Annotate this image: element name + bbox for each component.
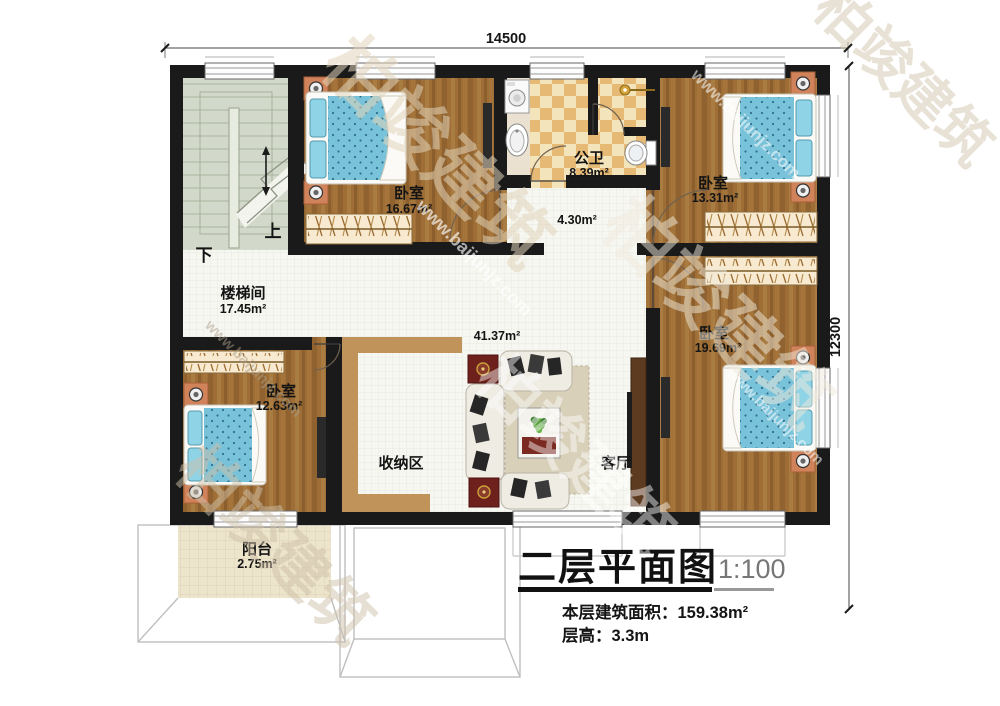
storage-border-left <box>342 337 358 512</box>
plan-title: 二层平面图 <box>518 547 718 589</box>
nightstand-icon <box>184 383 208 406</box>
room-label-bedroom-top-right: 卧室 <box>698 174 728 192</box>
dimension-right-value: 12300 <box>828 317 844 357</box>
bed-icon <box>184 405 266 485</box>
stair-handrail <box>229 108 239 248</box>
tv-icon <box>661 107 670 167</box>
window-top-bedroom2 <box>705 63 785 79</box>
room-area-hallway: 4.30m² <box>557 213 597 227</box>
title-block: 二层平面图 1:100 本层建筑面积：159.38m² 层高：3.3m <box>518 547 786 645</box>
window-top-stairwell <box>205 63 274 79</box>
room-area-bedroom-right: 19.69m² <box>695 341 742 355</box>
nightstand-icon <box>791 72 815 95</box>
room-label-bathroom: 公卫 <box>574 150 604 167</box>
room-label-bedroom-top-left: 卧室 <box>394 184 424 202</box>
room-label-storage: 收纳区 <box>378 454 423 472</box>
room-area-balcony: 2.75m² <box>237 557 277 571</box>
bed-icon <box>306 92 406 184</box>
wardrobe-icon <box>184 351 284 373</box>
nightstand-icon <box>791 450 815 472</box>
room-area-living: 41.37m² <box>474 329 521 343</box>
window-bottom-bedroom3 <box>700 511 785 527</box>
dimension-right: 12300 <box>828 62 853 613</box>
room-area-bedroom-bottom-left: 12.63m² <box>256 399 303 413</box>
coffee-table-icon <box>518 408 560 458</box>
watermark-brand: 柏竣建筑 <box>802 0 1000 178</box>
room-area-stairwell: 17.45m² <box>220 302 267 316</box>
title-underline-gray <box>714 588 774 591</box>
bed-icon <box>723 94 816 182</box>
stairs-down-label: 下 <box>196 246 213 265</box>
dimension-top-value: 14500 <box>486 31 526 47</box>
bed-icon <box>723 365 816 451</box>
window-top-bedroom1 <box>356 63 435 79</box>
storage-border-bottom <box>342 494 430 512</box>
wardrobe-icon <box>705 212 817 242</box>
balcony-sliding-door <box>214 511 297 527</box>
room-label-bedroom-bottom-left: 卧室 <box>266 382 296 400</box>
window-top-bathroom <box>530 63 584 79</box>
window-bottom-living <box>513 511 622 527</box>
side-table-icon <box>468 355 498 383</box>
wardrobe-icon <box>306 214 412 244</box>
stairs-up-label: 上 <box>265 222 282 241</box>
title-underline <box>518 587 712 592</box>
tv-icon <box>661 377 670 438</box>
room-area-bedroom-top-left: 16.67m² <box>386 202 433 216</box>
room-label-stairwell: 楼梯间 <box>220 284 265 302</box>
plan-scale: 1:100 <box>718 554 786 584</box>
dimension-top: 14500 <box>161 31 852 58</box>
floor-plan-drawing: 14500 12300 楼梯间 17.45m² 上 下 卧室 16.67m² 公… <box>0 0 1000 706</box>
storage-border-top <box>342 337 462 353</box>
washing-machine-icon <box>505 80 529 113</box>
room-label-balcony: 阳台 <box>242 540 272 558</box>
room-area-bedroom-top-right: 13.31m² <box>692 191 739 205</box>
tv-icon <box>483 103 492 168</box>
floor-area-line: 本层建筑面积：159.38m² <box>562 602 749 622</box>
toilet-icon <box>625 141 656 165</box>
sink-icon <box>506 124 528 156</box>
tv-icon <box>317 417 326 478</box>
floor-height-line: 层高：3.3m <box>562 625 649 645</box>
room-area-bathroom: 8.39m² <box>569 166 609 180</box>
wardrobe-icon <box>705 257 817 285</box>
side-table-icon <box>469 478 499 507</box>
room-label-living: 客厅 <box>600 454 631 472</box>
floor-plan-canvas: 14500 12300 楼梯间 17.45m² 上 下 卧室 16.67m² 公… <box>0 0 1000 706</box>
room-label-bedroom-right: 卧室 <box>699 324 729 342</box>
